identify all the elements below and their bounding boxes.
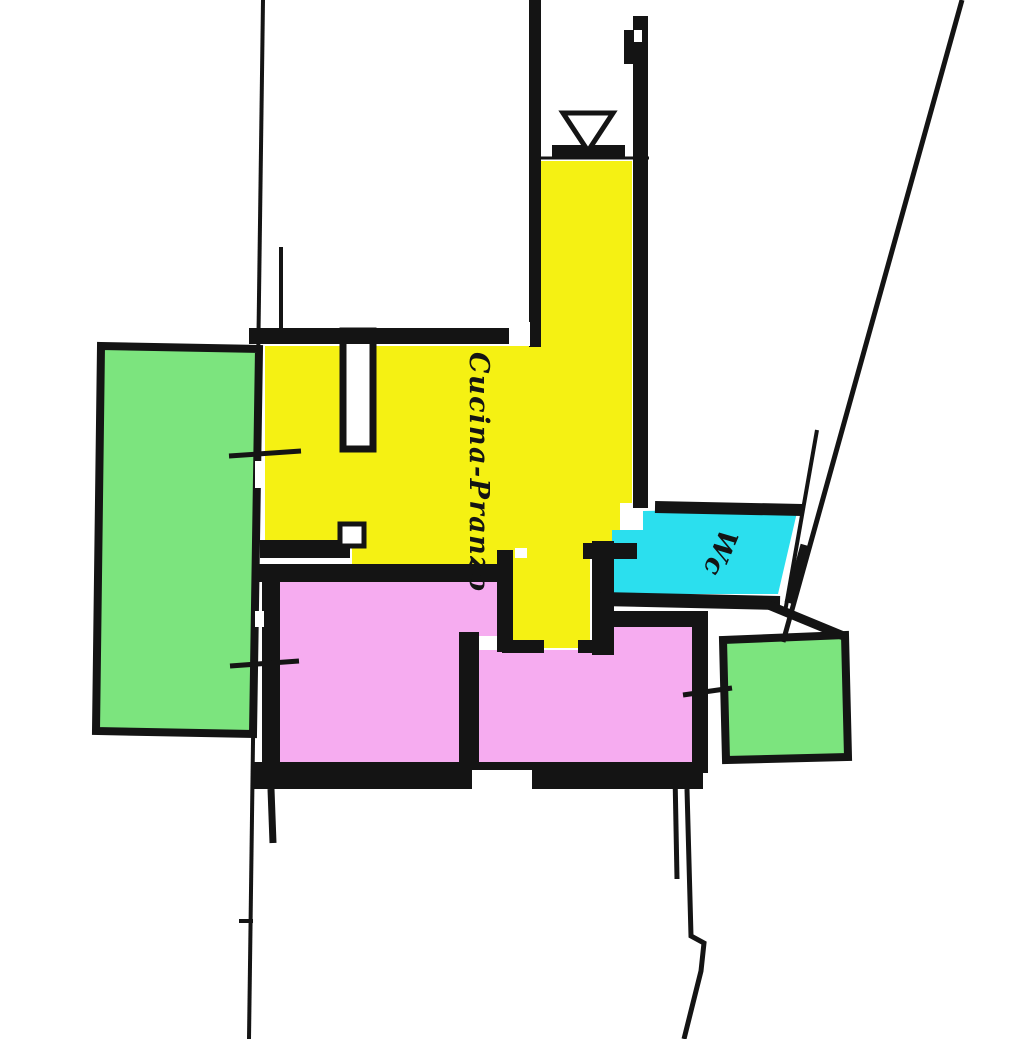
wall-corridor-right xyxy=(633,16,648,508)
wall-entry-room-bottom xyxy=(249,328,533,344)
door-gap-bottom-wall xyxy=(472,770,532,790)
wall-wc-bottom-line xyxy=(600,599,780,603)
door-gap-entry-room xyxy=(509,322,530,346)
wall-corridor-hook xyxy=(624,30,635,64)
room-balcony-left xyxy=(96,346,259,734)
hinge-dot-hall-stub xyxy=(515,548,527,558)
room-balcony-right xyxy=(723,635,848,760)
wall-bedroom-left-left xyxy=(262,564,280,772)
door-gap-balcony-left-b xyxy=(255,611,264,627)
wall-wc-top-line xyxy=(655,507,802,510)
notch-corridor-wall xyxy=(634,30,642,42)
label-kitchen-dining: Cucina-Pranzo xyxy=(463,352,494,593)
door-jamb-kitchen xyxy=(340,524,364,546)
wall-stub-below-left xyxy=(271,789,273,843)
wall-kitchen-bottom-left xyxy=(260,540,350,558)
wall-bedroom-divider xyxy=(459,632,479,770)
floor-plan-canvas: Cucina-Pranzo Wc xyxy=(0,0,1024,1039)
door-gap-balcony-left-a xyxy=(255,461,264,488)
floor-plan-drawing: Cucina-Pranzo Wc xyxy=(0,0,1024,1039)
wall-wc-left-bar xyxy=(583,543,637,559)
wall-stub-below-hall xyxy=(675,774,677,879)
site-line-bottom-jog xyxy=(684,789,704,1039)
wall-hall-bottom-bit-right xyxy=(578,640,593,653)
site-boundary-diagonal-line xyxy=(783,0,962,642)
wall-wc-to-balcony-link xyxy=(766,604,846,637)
wall-hall-bottom-bit-left xyxy=(502,640,544,653)
wall-bedroom-right-top xyxy=(606,611,704,627)
wall-hall-stub-left xyxy=(497,550,513,652)
kitchen-partition-wall xyxy=(343,331,373,449)
wall-corridor-left xyxy=(529,0,541,347)
